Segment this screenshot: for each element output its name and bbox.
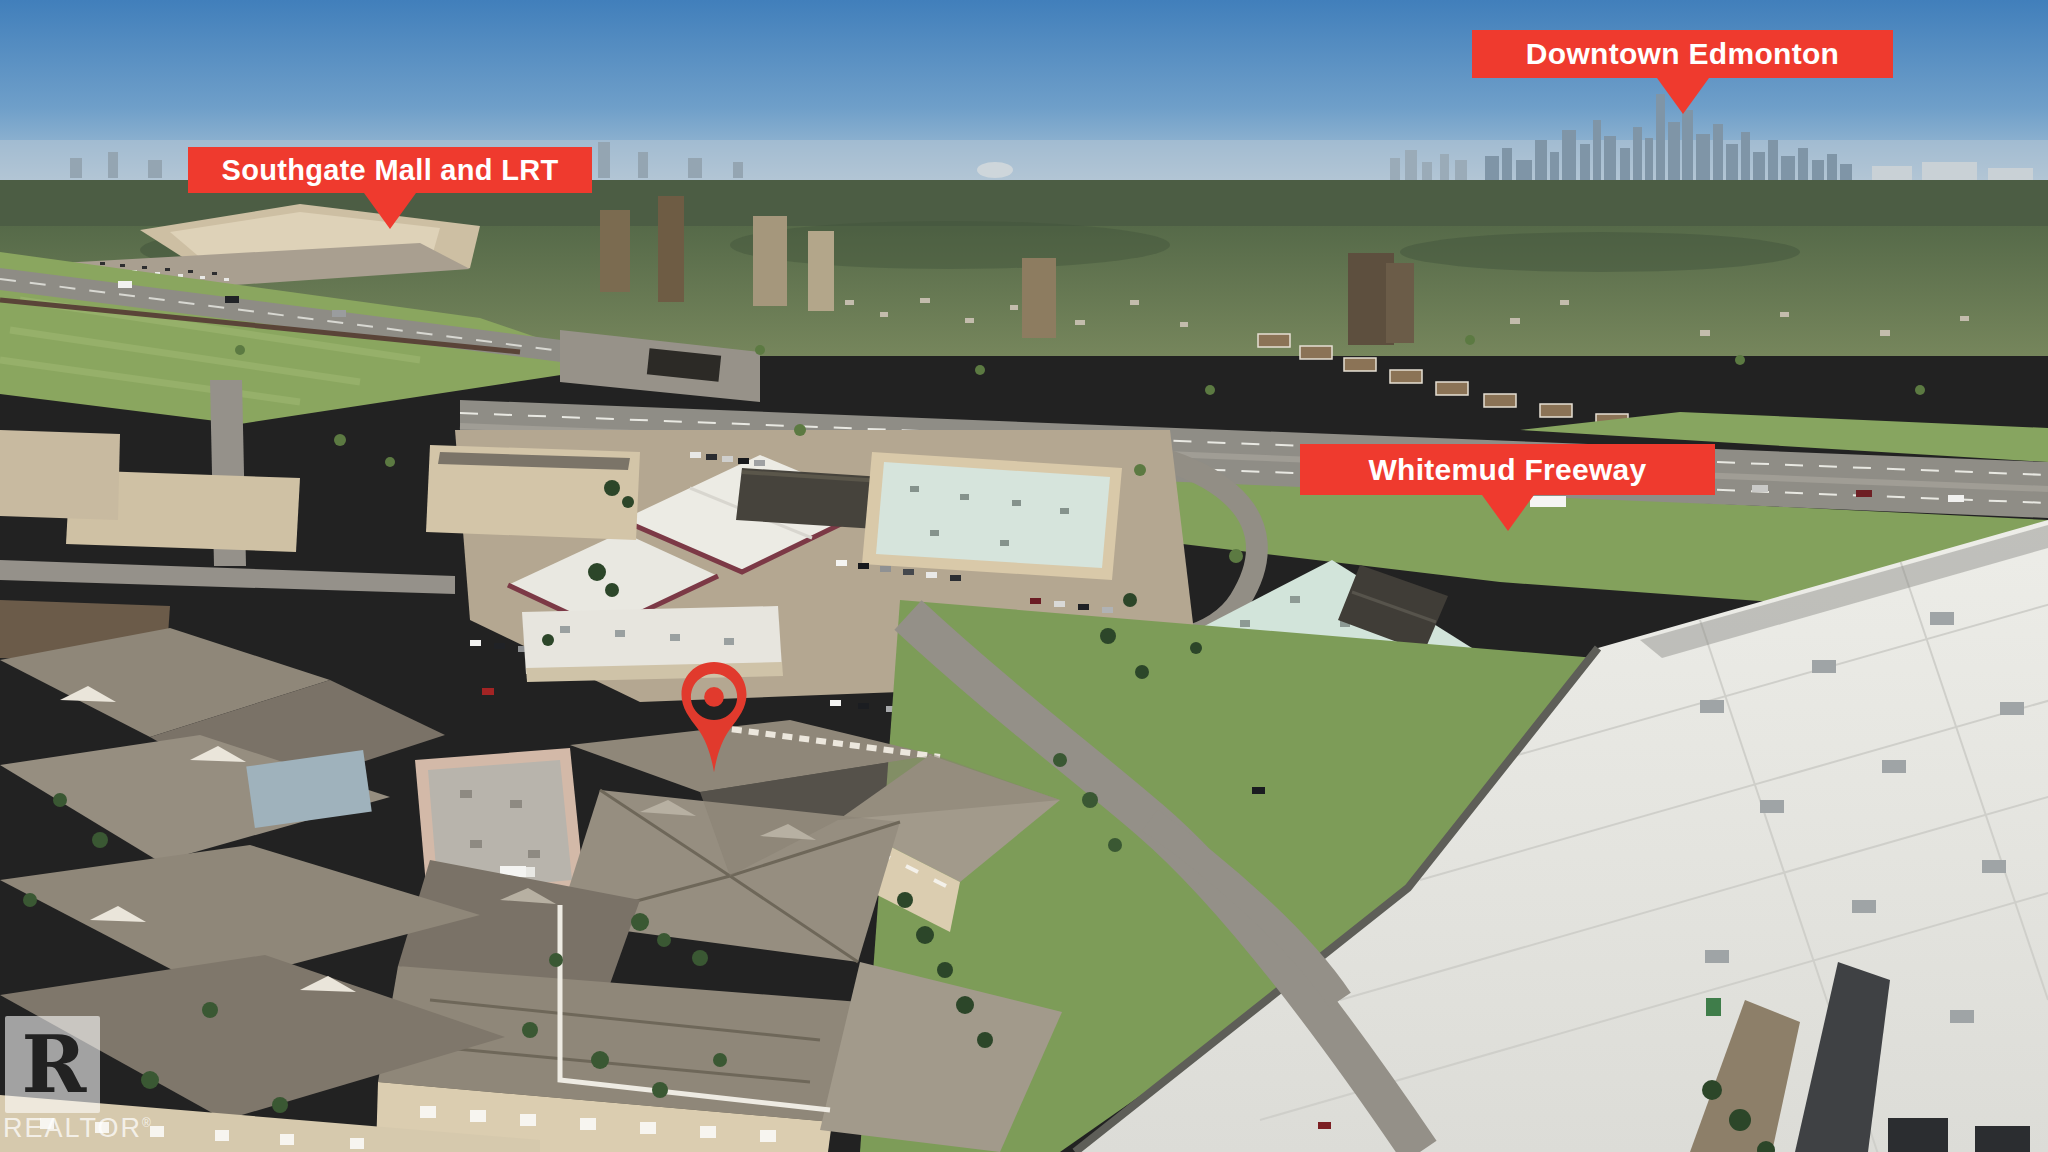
- realtor-watermark: R REALTOR®: [3, 1016, 173, 1142]
- callout-label: Downtown Edmonton: [1526, 37, 1839, 71]
- callout-southgate-mall-lrt: Southgate Mall and LRT: [188, 147, 592, 193]
- callout-label: Southgate Mall and LRT: [222, 154, 559, 187]
- callout-whitemud-freeway: Whitemud Freeway: [1300, 444, 1715, 495]
- callout-label: Whitemud Freeway: [1368, 453, 1646, 487]
- location-pin-icon: [678, 660, 750, 788]
- realtor-watermark-text: REALTOR®: [3, 1115, 173, 1142]
- aerial-photo-stage: Downtown Edmonton Southgate Mall and LRT…: [0, 0, 2048, 1152]
- realtor-logo: R: [5, 1016, 100, 1113]
- registered-mark: ®: [142, 1116, 151, 1130]
- dumpster: [1706, 998, 1721, 1016]
- dark-red-car: [1318, 1122, 1331, 1129]
- red-car: [482, 688, 494, 695]
- callout-downtown-edmonton: Downtown Edmonton: [1472, 30, 1893, 78]
